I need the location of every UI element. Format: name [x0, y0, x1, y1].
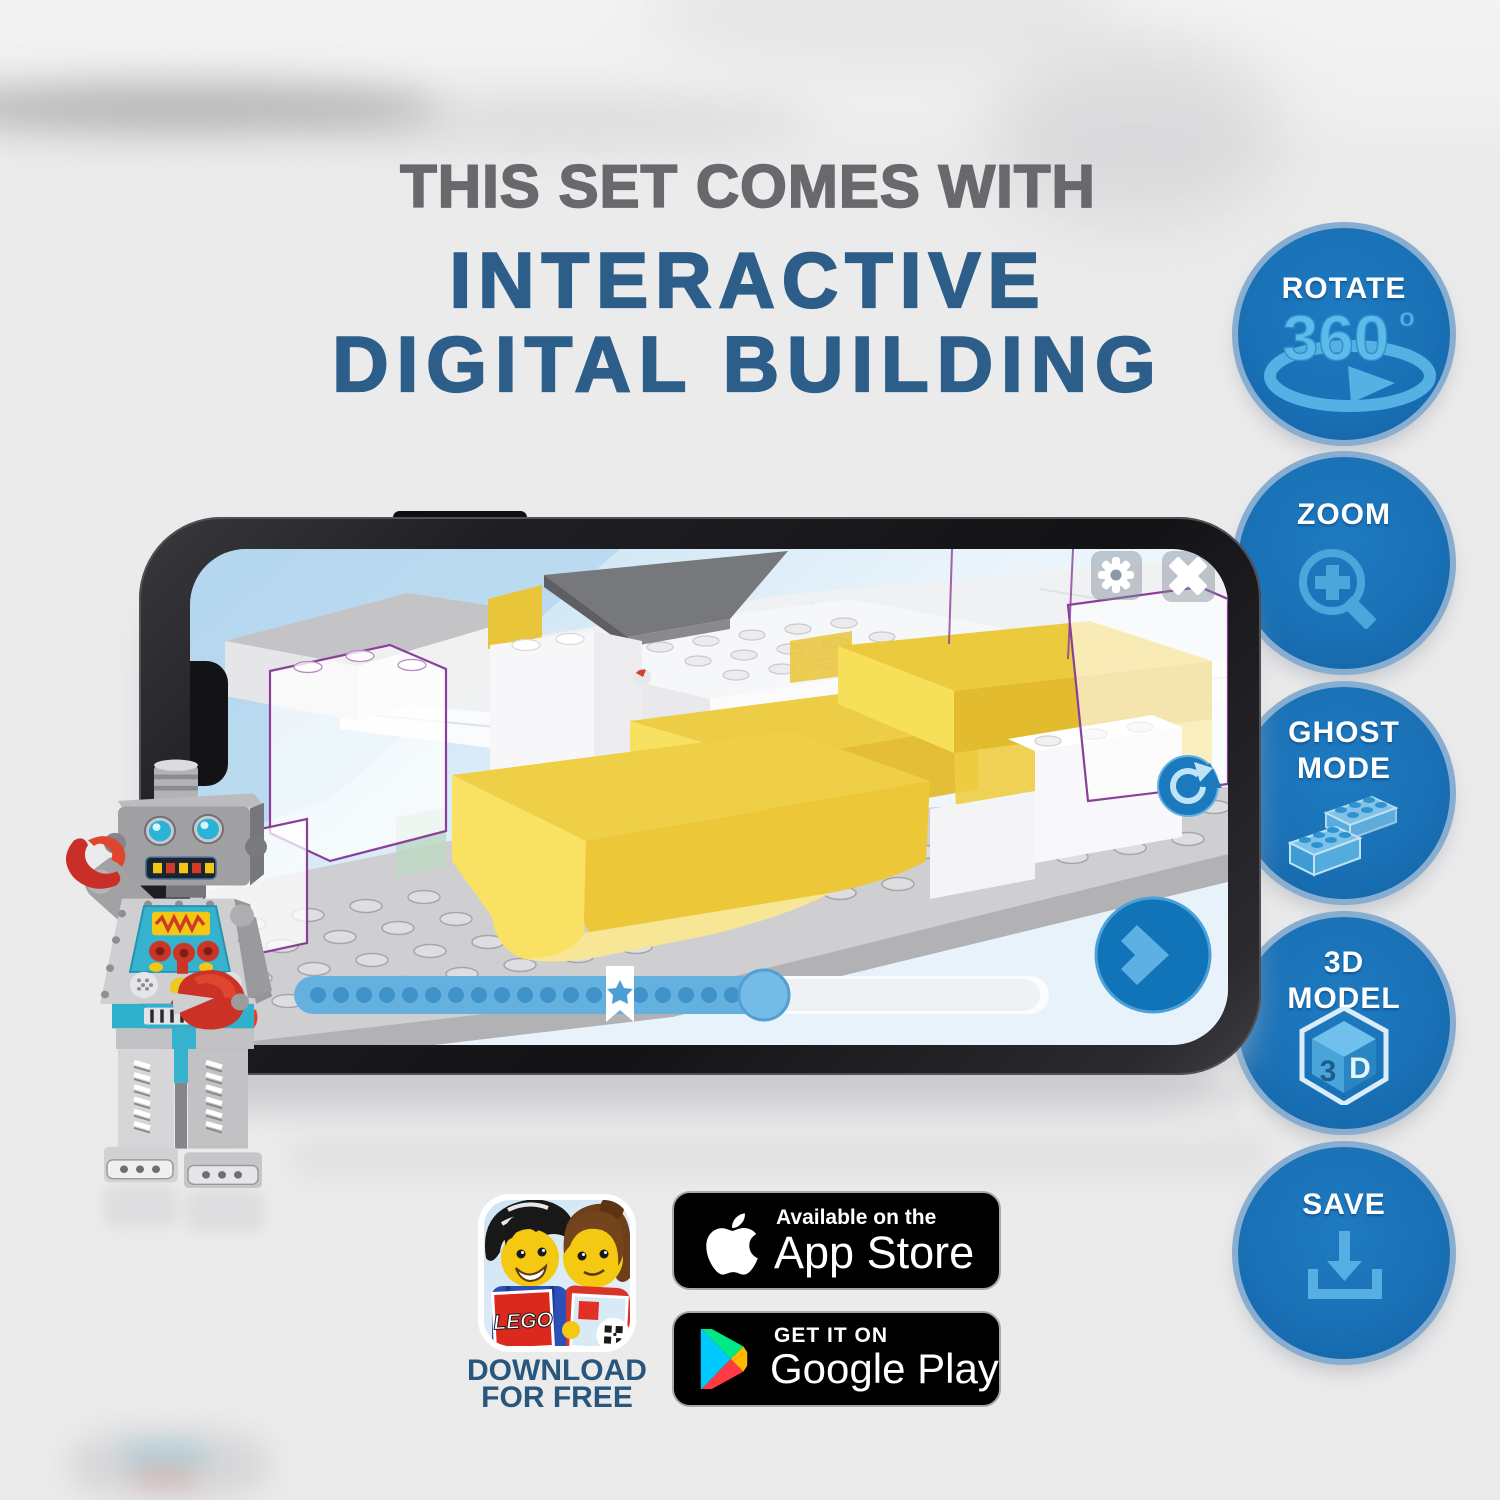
svg-text:o: o	[1399, 306, 1415, 332]
svg-text:360: 360	[1283, 306, 1390, 374]
svg-text:D: D	[1349, 1052, 1371, 1085]
svg-text:3: 3	[1320, 1055, 1337, 1088]
svg-text:LEGO: LEGO	[493, 1308, 554, 1334]
